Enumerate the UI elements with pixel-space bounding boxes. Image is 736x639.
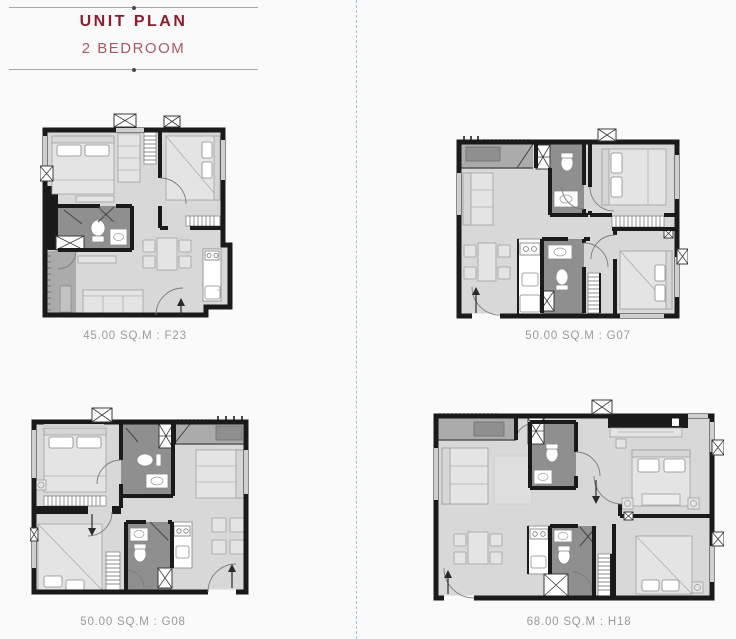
rule-dot (132, 68, 136, 72)
shaft-ladder (106, 552, 120, 590)
header-rule-bottom (9, 69, 258, 70)
kitchen (518, 239, 542, 316)
unit-card-g08 (30, 400, 254, 602)
header-rule-top (9, 7, 258, 8)
bathroom-2 (126, 522, 172, 590)
page-subtitle: 2 BEDROOM (9, 40, 258, 57)
bedroom-2 (620, 251, 672, 309)
unit-caption-g08: 50.00 SQ.M : G08 (33, 616, 233, 628)
floorplan-h18 (430, 396, 724, 608)
bathroom-1 (121, 422, 173, 496)
bedroom-1 (602, 149, 673, 238)
kitchen (172, 522, 192, 568)
balcony (45, 251, 76, 313)
bathroom-1 (528, 418, 576, 488)
floorplan-g07 (452, 127, 688, 325)
shaft-ladder (598, 554, 611, 596)
floorplan-g08 (30, 400, 254, 602)
unit-caption-h18: 68.00 SQ.M : H18 (479, 616, 679, 628)
unit-card-h18 (430, 396, 724, 608)
section-divider (356, 0, 357, 639)
floorplan-f23 (40, 110, 240, 322)
rule-dot (132, 6, 136, 10)
unit-card-g07 (452, 127, 688, 325)
shaft-ladder (588, 273, 600, 313)
page-title: UNIT PLAN (9, 13, 258, 31)
kitchen (203, 249, 221, 301)
unit-caption-g07: 50.00 SQ.M : G07 (478, 330, 678, 342)
bathroom-2 (540, 239, 584, 316)
shaft (144, 132, 156, 164)
kitchen (528, 526, 550, 574)
unit-card-f23 (40, 110, 240, 322)
unit-caption-f23: 45.00 SQ.M : F23 (35, 330, 235, 342)
